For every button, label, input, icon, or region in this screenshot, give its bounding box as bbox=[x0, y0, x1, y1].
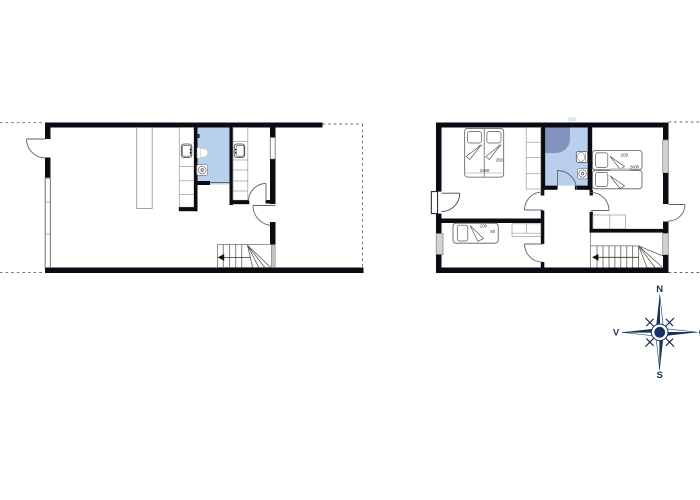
svg-text:V: V bbox=[613, 328, 620, 339]
svg-text:80: 80 bbox=[490, 229, 495, 234]
svg-text:200: 200 bbox=[621, 152, 629, 157]
svg-text:200: 200 bbox=[496, 158, 504, 163]
svg-text:200: 200 bbox=[480, 223, 488, 228]
svg-text:2x80: 2x80 bbox=[630, 164, 640, 169]
svg-text:S: S bbox=[657, 370, 663, 381]
svg-text:N: N bbox=[656, 284, 663, 295]
svg-text:2x80: 2x80 bbox=[480, 168, 490, 173]
